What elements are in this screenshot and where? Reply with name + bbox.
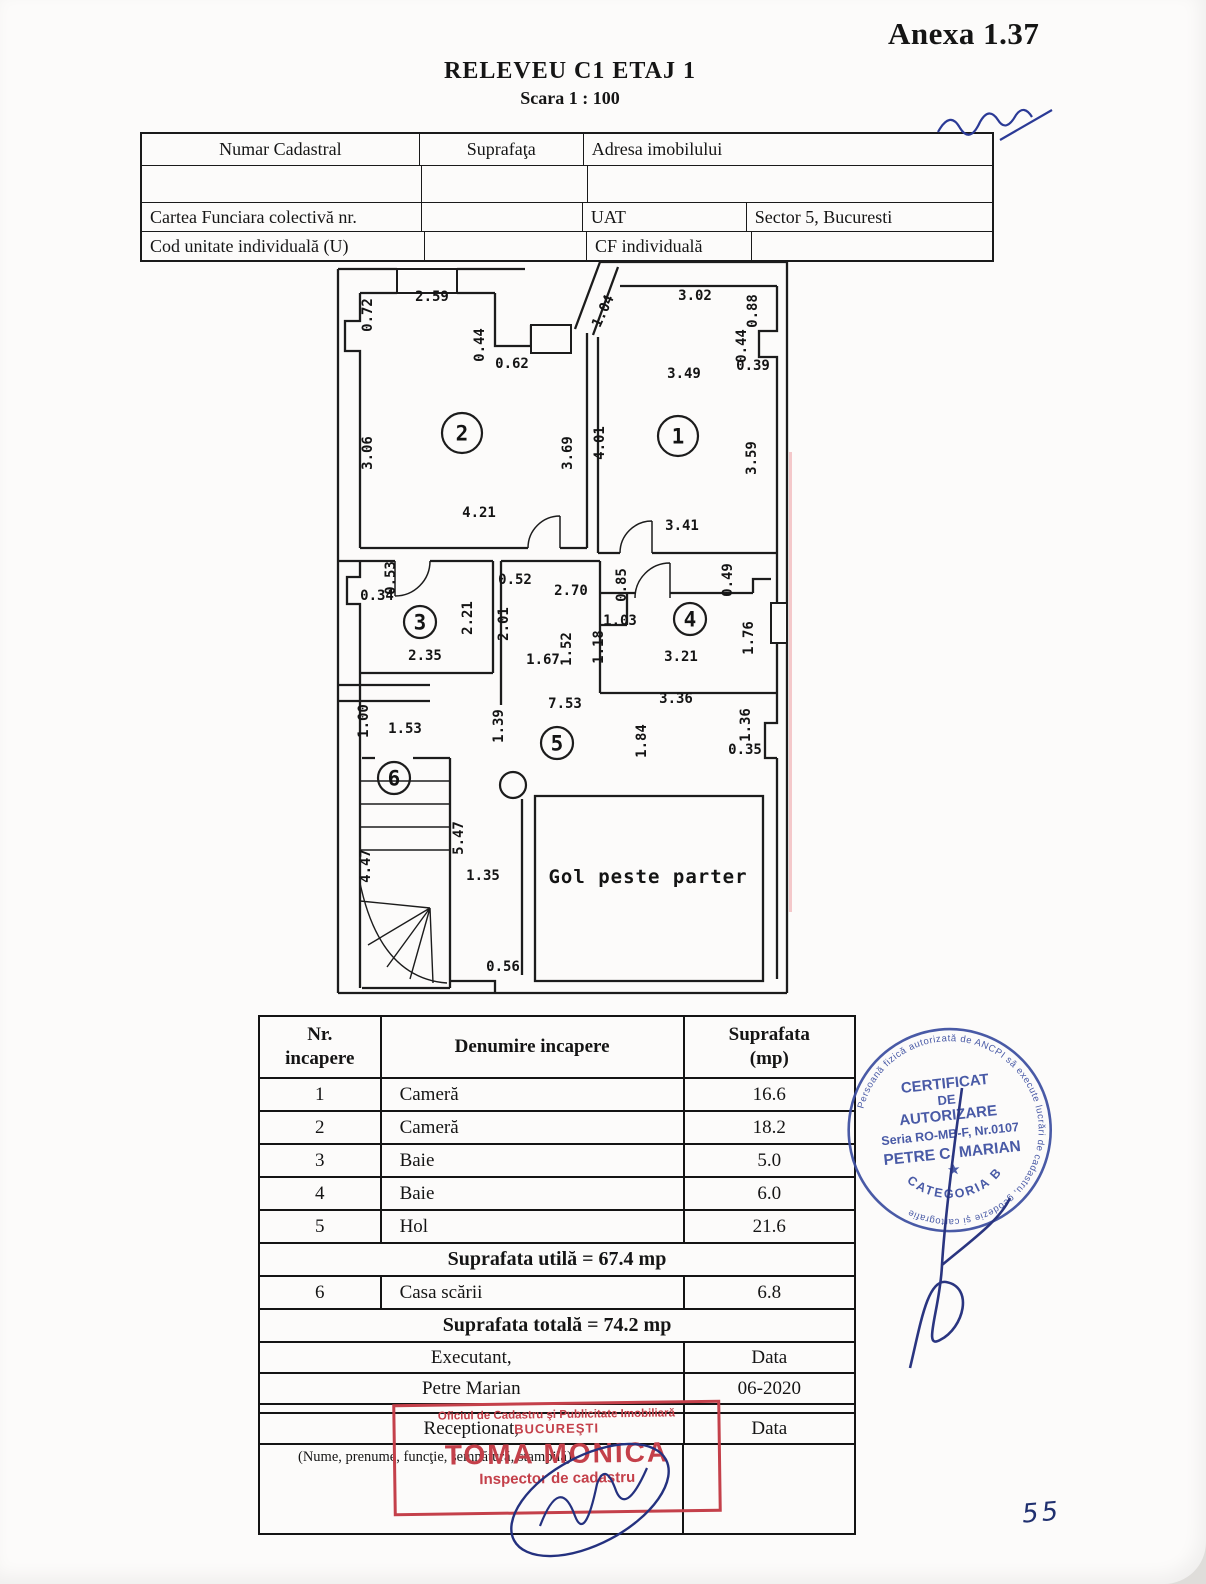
adresa-value: [588, 166, 992, 202]
dim-label: 3.49: [667, 366, 701, 382]
floor-plan: 123456 2.590.720.440.621.043.020.880.440…: [335, 253, 790, 998]
dim-label: 3.59: [744, 441, 760, 475]
handwritten-page-number: 55: [1021, 1496, 1063, 1529]
dim-label: 3.69: [560, 436, 576, 470]
dim-label: 2.01: [496, 607, 512, 641]
room-number-circles: 123456: [378, 413, 706, 794]
dim-label: 0.88: [745, 294, 761, 328]
cell-room-name: Cameră: [382, 1112, 685, 1143]
rooms-table-row: Suprafata totală = 74.2 mp: [260, 1310, 854, 1343]
cell-room-number: 5: [260, 1211, 382, 1242]
rooms-table-row: 4Baie6.0: [260, 1178, 854, 1211]
document-page: Anexa 1.37 RELEVEU C1 ETAJ 1 Scara 1 : 1…: [0, 0, 1206, 1584]
dim-label: 1.18: [591, 630, 607, 664]
cell-room-number: 1: [260, 1079, 382, 1110]
dim-label: 2.21: [460, 601, 476, 635]
dim-label: 1.52: [559, 632, 575, 666]
dim-label: 1.36: [738, 708, 754, 742]
dim-label: 1.04: [589, 293, 618, 330]
dim-label: 1.84: [634, 724, 650, 758]
rooms-table-row: 1Cameră16.6: [260, 1079, 854, 1112]
dim-label: 3.21: [664, 649, 698, 665]
rooms-table-row: 6Casa scării6.8: [260, 1277, 854, 1310]
dim-label: 0.39: [736, 358, 770, 374]
dim-label: 3.41: [665, 518, 699, 534]
dim-label: 2.59: [415, 289, 449, 305]
cell-total-line: Suprafata utilă = 67.4 mp: [260, 1244, 854, 1275]
dim-label: 0.35: [728, 742, 762, 758]
cartea-funciara-label: Cartea Funciara colectivă nr.: [142, 203, 422, 231]
dim-label: 4.21: [462, 505, 496, 521]
landing-block: [531, 325, 571, 353]
header-suprafata-text: Suprafata: [729, 1023, 810, 1047]
page-title: RELEVEU C1 ETAJ 1: [0, 58, 1140, 85]
suprafata-value: [422, 166, 588, 202]
cell-room-area: 6.0: [685, 1178, 854, 1209]
cell-room-area: 16.6: [685, 1079, 854, 1110]
wall-pier: [771, 603, 787, 643]
dim-label: 0.72: [360, 298, 376, 332]
info-row-cf: Cartea Funciara colectivă nr. UAT Sector…: [142, 203, 992, 232]
header-incapere: incapere: [285, 1047, 354, 1071]
info-row-header: Numar Cadastral Suprafaţa Adresa imobilu…: [142, 134, 992, 166]
scan-artifact-line: [789, 452, 792, 912]
dim-label: 5.47: [451, 821, 467, 855]
cell-room-name: Baie: [382, 1178, 685, 1209]
cell-room-area: 18.2: [685, 1112, 854, 1143]
header-nr: Nr.: [307, 1023, 332, 1047]
cell-right: 06-2020: [685, 1374, 854, 1403]
dim-label: 1.35: [466, 868, 500, 884]
cell-room-name: Hol: [382, 1211, 685, 1242]
cell-left: Executant,: [260, 1343, 685, 1372]
dim-label: 0.52: [498, 572, 532, 588]
numar-cadastral-value: [142, 166, 422, 202]
cell-right: Data: [685, 1343, 854, 1372]
dim-label: 4.01: [592, 426, 608, 460]
dim-label: 0.56: [486, 959, 520, 975]
room-number: 6: [388, 767, 401, 791]
cell-room-name: Baie: [382, 1145, 685, 1176]
scanned-cadastral-document: { "page": { "annex": "Anexa 1.37", "titl…: [0, 0, 1206, 1584]
dim-label: 0.85: [614, 568, 630, 602]
cartea-funciara-value: [422, 203, 583, 231]
cell-room-number: 4: [260, 1178, 382, 1209]
suprafata-label: Suprafaţa: [420, 134, 584, 165]
header-mp: (mp): [750, 1047, 789, 1071]
rooms-table-header: Nr. incapere Denumire incapere Suprafata…: [260, 1017, 854, 1079]
rooms-table-row: 3Baie5.0: [260, 1145, 854, 1178]
dim-label: 2.70: [554, 583, 588, 599]
rooms-table-row: 2Cameră18.2: [260, 1112, 854, 1145]
uat-label: UAT: [583, 203, 747, 231]
info-row-empty: [142, 166, 992, 203]
dim-label: 0.44: [472, 328, 488, 362]
cell-total-line: Suprafata totală = 74.2 mp: [260, 1310, 854, 1341]
dim-label: 4.47: [358, 849, 374, 883]
dim-label: 0.49: [720, 563, 736, 597]
dim-label: 1.67: [526, 652, 560, 668]
dim-label: 2.35: [408, 648, 442, 664]
dim-label: 7.53: [548, 696, 582, 712]
cadastral-info-table: Numar Cadastral Suprafaţa Adresa imobilu…: [140, 132, 994, 262]
dim-label: 0.34: [360, 588, 394, 604]
cell-room-name: Casa scării: [382, 1277, 685, 1308]
cell-room-area: 21.6: [685, 1211, 854, 1242]
uat-value: Sector 5, Bucuresti: [747, 203, 992, 231]
dim-label: 1.76: [741, 621, 757, 655]
handwritten-signature-top: [930, 100, 1065, 148]
room-number: 2: [456, 422, 469, 446]
dim-label: 1.39: [491, 709, 507, 743]
dim-label: 1.03: [603, 613, 637, 629]
dim-label: 1.00: [356, 704, 372, 738]
rooms-table-row: 5Hol21.6: [260, 1211, 854, 1244]
cell-room-area: 5.0: [685, 1145, 854, 1176]
dim-label: 3.02: [678, 288, 712, 304]
cell-left: Petre Marian: [260, 1374, 685, 1403]
room-number: 1: [672, 425, 685, 449]
room-number: 5: [551, 732, 564, 756]
dim-label: 1.53: [388, 721, 422, 737]
cell-room-number: 3: [260, 1145, 382, 1176]
receptionat-signature: [478, 1428, 708, 1578]
dim-label: 0.62: [495, 356, 529, 372]
cell-room-name: Cameră: [382, 1079, 685, 1110]
annex-label: Anexa 1.37: [888, 16, 1039, 52]
cell-room-area: 6.8: [685, 1277, 854, 1308]
dim-label: 3.06: [360, 436, 376, 470]
rooms-table-row: Petre Marian06-2020: [260, 1374, 854, 1405]
rooms-table-row: Executant,Data: [260, 1343, 854, 1374]
executant-signature: [880, 1080, 1050, 1380]
room-number: 4: [684, 608, 697, 632]
header-denumire: Denumire incapere: [382, 1017, 685, 1077]
rooms-table-row: Suprafata utilă = 67.4 mp: [260, 1244, 854, 1277]
header-nr-incapere: Nr. incapere: [260, 1017, 382, 1077]
column: [500, 772, 526, 798]
room-number: 3: [414, 611, 427, 635]
numar-cadastral-label: Numar Cadastral: [142, 134, 420, 165]
cell-room-number: 2: [260, 1112, 382, 1143]
dim-label: 3.36: [659, 691, 693, 707]
gol-peste-parter-label: Gol peste parter: [548, 866, 747, 888]
cell-room-number: 6: [260, 1277, 382, 1308]
